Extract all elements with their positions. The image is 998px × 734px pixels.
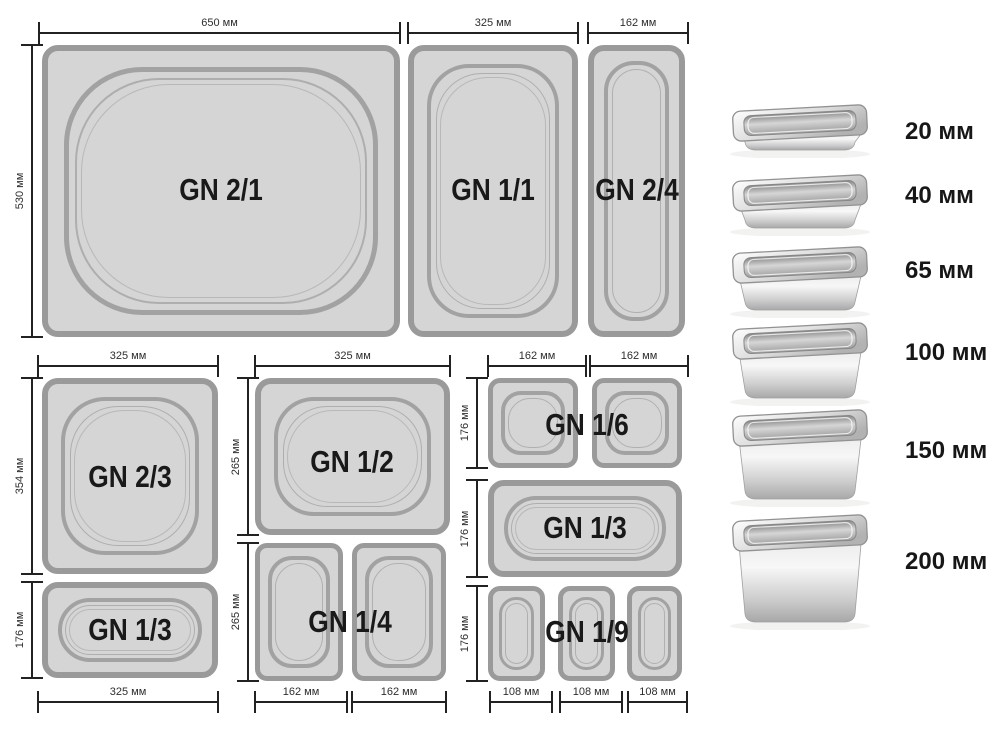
dim-tick	[21, 573, 43, 575]
dim-line	[408, 32, 578, 34]
dim-label: 325 мм	[110, 350, 147, 362]
depth-label: 40 мм	[905, 182, 974, 210]
dim-tick	[687, 22, 689, 44]
dim-line	[560, 701, 622, 703]
dim-label: 176 мм	[459, 405, 471, 442]
dim-line	[247, 378, 249, 535]
dim-tick	[559, 691, 561, 713]
dim-line	[488, 365, 586, 367]
dim-line	[476, 480, 478, 577]
depth-row-100mm: 100 мм	[700, 318, 998, 406]
dim-tick	[587, 22, 589, 44]
dim-tick	[21, 677, 43, 679]
dim-label: 108 мм	[573, 686, 610, 698]
dim-tick	[346, 691, 348, 713]
dim-tick	[466, 479, 488, 481]
depth-row-40mm: 40 мм	[700, 170, 998, 236]
dim-label: 162 мм	[620, 17, 657, 29]
pan-label-gn-1-1: GN 1/1	[451, 172, 534, 208]
dim-line	[31, 45, 33, 337]
dim-line	[38, 365, 218, 367]
depth-label: 150 мм	[905, 437, 987, 465]
dim-tick	[466, 585, 488, 587]
dim-line	[247, 543, 249, 681]
dim-tick	[585, 355, 587, 377]
dim-label: 530 мм	[14, 173, 26, 210]
dim-tick	[254, 691, 256, 713]
dim-label: 162 мм	[283, 686, 320, 698]
dim-tick	[21, 581, 43, 583]
depth-row-20mm: 20 мм	[700, 100, 998, 158]
dim-tick	[254, 355, 256, 377]
depth-label: 100 мм	[905, 339, 987, 367]
pan-label-gn-2-4: GN 2/4	[595, 172, 678, 208]
pan-label-gn-1-4: GN 1/4	[308, 604, 391, 640]
pan-label-gn-2-3: GN 2/3	[88, 459, 171, 495]
dim-tick	[237, 534, 259, 536]
dim-tick	[489, 691, 491, 713]
dim-tick	[21, 336, 43, 338]
depth-label: 65 мм	[905, 257, 974, 285]
pan-label-gn-1-9: GN 1/9	[545, 614, 628, 650]
dim-label: 325 мм	[334, 350, 371, 362]
dim-tick	[237, 680, 259, 682]
dim-line	[255, 365, 450, 367]
depth-label: 200 мм	[905, 548, 987, 576]
dim-tick	[399, 22, 401, 44]
dim-tick	[217, 355, 219, 377]
dim-line	[352, 701, 446, 703]
pan-label-gn-1-2: GN 1/2	[310, 444, 393, 480]
dim-line	[490, 701, 552, 703]
steel-pan-photo	[725, 510, 875, 635]
dim-label: 650 мм	[201, 17, 238, 29]
dim-tick	[351, 691, 353, 713]
dim-label: 176 мм	[459, 615, 471, 652]
dim-label: 265 мм	[230, 438, 242, 475]
dim-label: 108 мм	[503, 686, 540, 698]
dim-tick	[466, 680, 488, 682]
dim-tick	[466, 377, 488, 379]
dim-tick	[21, 44, 43, 46]
dim-tick	[37, 355, 39, 377]
dim-tick	[466, 467, 488, 469]
dim-label: 162 мм	[381, 686, 418, 698]
dim-label: 108 мм	[639, 686, 676, 698]
dim-tick	[551, 691, 553, 713]
dim-line	[39, 32, 400, 34]
dim-tick	[466, 576, 488, 578]
depth-label: 20 мм	[905, 118, 974, 146]
pan-rim-ring	[644, 603, 665, 664]
dim-line	[31, 582, 33, 678]
dim-line	[38, 701, 218, 703]
pan-label-gn-1-3-left: GN 1/3	[88, 612, 171, 648]
pan-gn-1-9-a	[488, 586, 545, 681]
depth-row-65mm: 65 мм	[700, 242, 998, 318]
steel-pan-photo	[725, 318, 875, 411]
dim-tick	[38, 22, 40, 44]
dim-line	[255, 701, 347, 703]
dim-label: 265 мм	[230, 594, 242, 631]
dim-label: 325 мм	[475, 17, 512, 29]
dim-label: 162 мм	[519, 350, 556, 362]
dim-line	[476, 378, 478, 468]
dim-tick	[687, 355, 689, 377]
dim-tick	[237, 377, 259, 379]
dim-tick	[445, 691, 447, 713]
dim-tick	[621, 691, 623, 713]
dim-tick	[589, 355, 591, 377]
gastronorm-sizes-diagram: 650 мм 325 мм 162 мм 530 мм GN 2/1 GN 1/…	[0, 0, 998, 734]
dim-line	[590, 365, 688, 367]
pan-label-gn-2-1: GN 2/1	[179, 172, 262, 208]
dim-label: 354 мм	[14, 458, 26, 495]
depth-row-150mm: 150 мм	[700, 405, 998, 507]
steel-pan-photo	[725, 100, 875, 163]
pan-label-gn-1-6: GN 1/6	[545, 407, 628, 443]
dim-tick	[449, 355, 451, 377]
dim-tick	[237, 542, 259, 544]
pan-label-gn-1-3-right: GN 1/3	[543, 510, 626, 546]
steel-pan-photo	[725, 170, 875, 241]
dim-label: 176 мм	[14, 612, 26, 649]
dim-tick	[37, 691, 39, 713]
dim-line	[628, 701, 687, 703]
pan-gn-1-9-c	[627, 586, 682, 681]
dim-tick	[487, 355, 489, 377]
dim-line	[588, 32, 688, 34]
depth-row-200mm: 200 мм	[700, 510, 998, 630]
dim-label: 325 мм	[110, 686, 147, 698]
dim-tick	[21, 377, 43, 379]
dim-tick	[407, 22, 409, 44]
dim-tick	[627, 691, 629, 713]
steel-pan-photo	[725, 405, 875, 512]
dim-label: 176 мм	[459, 510, 471, 547]
steel-pan-photo	[725, 242, 875, 323]
pan-rim-ring	[505, 603, 528, 664]
dim-tick	[686, 691, 688, 713]
dim-tick	[577, 22, 579, 44]
dim-line	[31, 378, 33, 574]
dim-line	[476, 586, 478, 681]
dim-label: 162 мм	[621, 350, 658, 362]
dim-tick	[217, 691, 219, 713]
